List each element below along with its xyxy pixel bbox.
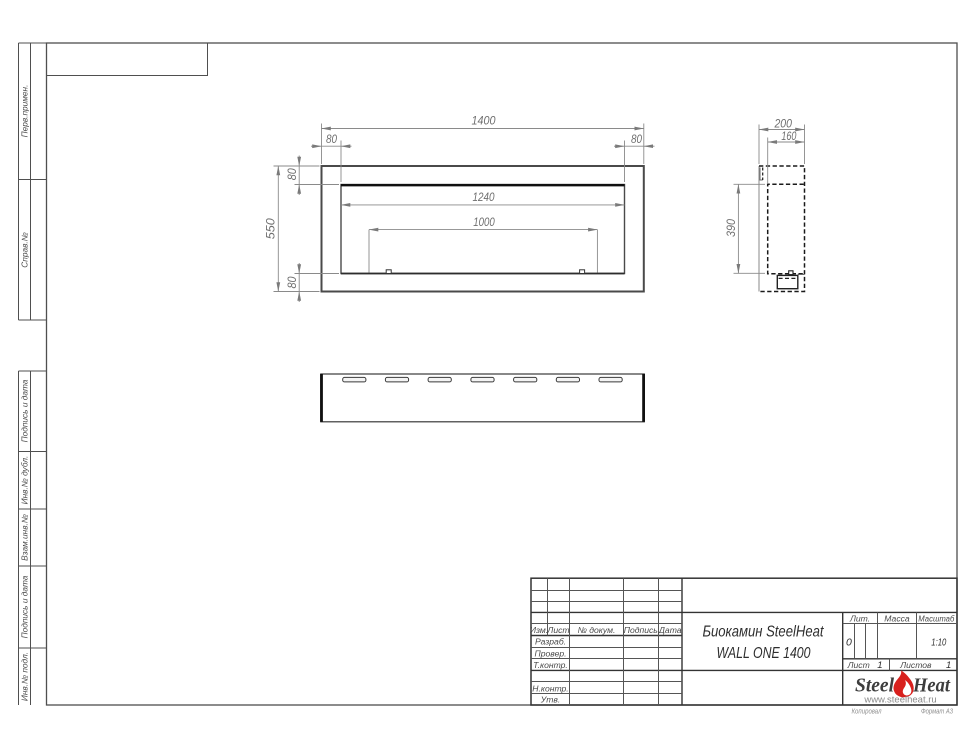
svg-text:Перв.примен.: Перв.примен. [20, 85, 30, 138]
svg-text:Масса: Масса [884, 613, 910, 623]
svg-text:Н.контр.: Н.контр. [532, 683, 568, 693]
svg-text:Т.контр.: Т.контр. [533, 660, 568, 670]
svg-text:www.steelheat.ru: www.steelheat.ru [863, 695, 936, 706]
svg-text:80: 80 [287, 168, 299, 181]
svg-text:1400: 1400 [472, 116, 497, 128]
svg-text:1: 1 [946, 660, 951, 671]
svg-text:80: 80 [287, 276, 299, 289]
svg-text:Лит.: Лит. [849, 613, 870, 623]
svg-text:Справ.№: Справ.№ [20, 232, 30, 267]
svg-text:Инв.№ дубл.: Инв.№ дубл. [20, 456, 30, 505]
svg-text:Биокамин SteelHeat: Биокамин SteelHeat [703, 624, 824, 641]
svg-text:Лист: Лист [546, 625, 569, 635]
svg-text:Копировал: Копировал [852, 709, 882, 716]
svg-text:1:10: 1:10 [931, 637, 946, 649]
svg-text:WALL ONE 1400: WALL ONE 1400 [717, 645, 811, 662]
svg-text:Heat: Heat [912, 675, 951, 697]
svg-text:80: 80 [326, 134, 338, 146]
svg-text:Разраб.: Разраб. [535, 637, 566, 647]
svg-text:Подпись и дата: Подпись и дата [20, 379, 30, 442]
svg-text:Провер.: Провер. [534, 648, 566, 658]
svg-text:№ докум.: № докум. [578, 625, 616, 635]
svg-text:80: 80 [631, 134, 643, 146]
svg-text:Дата: Дата [658, 625, 682, 635]
svg-text:Утв.: Утв. [540, 695, 561, 705]
svg-text:160: 160 [781, 131, 796, 143]
svg-text:0: 0 [846, 637, 852, 649]
svg-text:Подпись и дата: Подпись и дата [20, 575, 30, 638]
svg-text:1240: 1240 [473, 192, 496, 204]
svg-text:390: 390 [726, 218, 738, 237]
svg-text:Взам.инв.№: Взам.инв.№ [20, 514, 30, 561]
svg-text:Лист: Лист [847, 660, 870, 670]
svg-text:Изм.: Изм. [530, 625, 548, 635]
svg-text:1: 1 [877, 660, 882, 671]
svg-text:Листов: Листов [899, 660, 932, 670]
svg-text:1000: 1000 [473, 217, 495, 229]
svg-text:Масштаб: Масштаб [918, 613, 955, 623]
svg-text:Формат А3: Формат А3 [921, 709, 953, 716]
svg-text:Инв.№ подл.: Инв.№ подл. [20, 652, 30, 701]
svg-text:Подпись: Подпись [624, 625, 659, 635]
svg-text:Steel: Steel [855, 675, 894, 697]
svg-text:200: 200 [774, 118, 793, 130]
svg-text:550: 550 [266, 218, 278, 240]
